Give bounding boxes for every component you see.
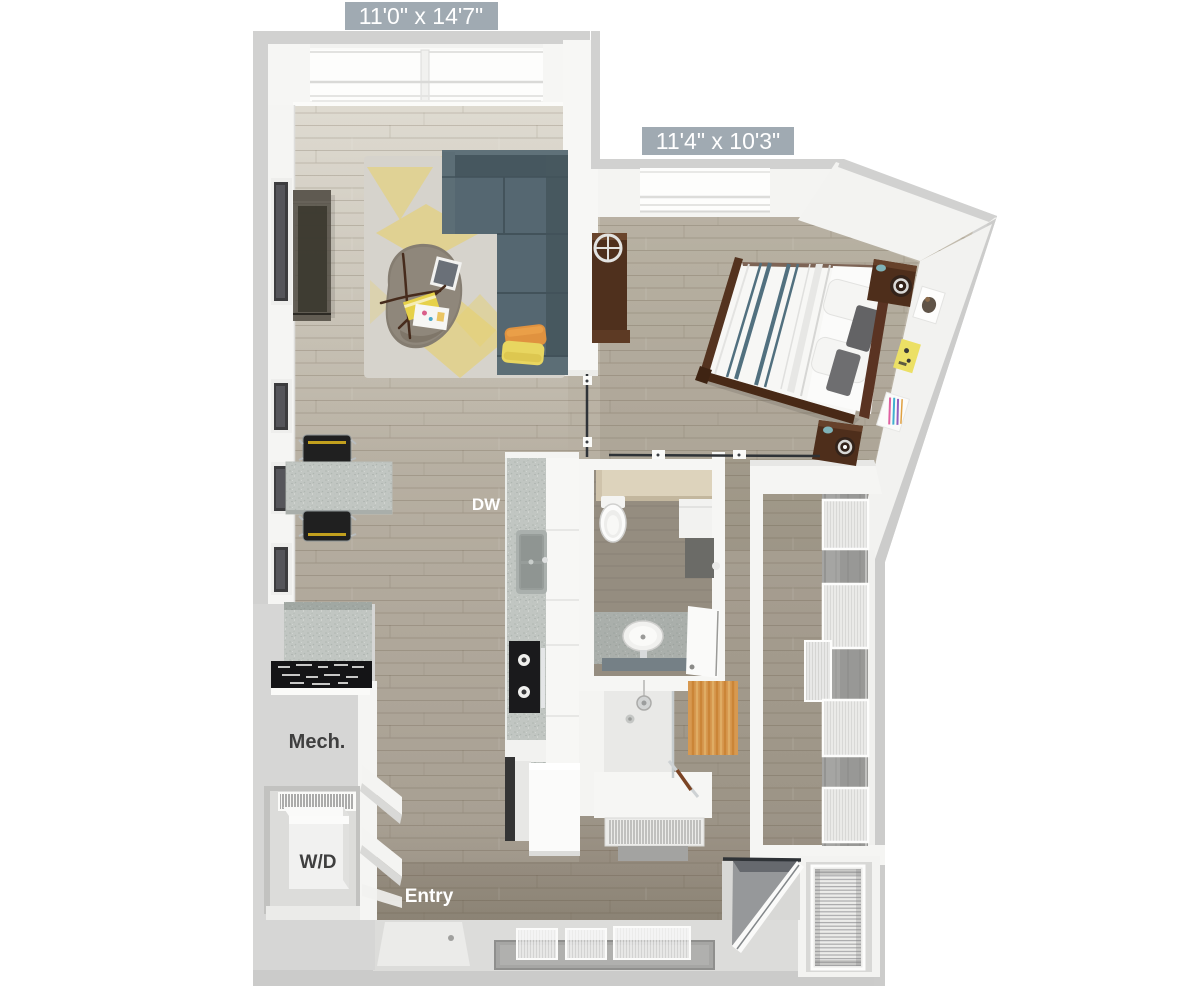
svg-text:DW: DW <box>472 495 501 514</box>
svg-text:Mech.: Mech. <box>289 731 346 753</box>
svg-text:W/D: W/D <box>300 852 337 873</box>
svg-text:11'4" x 10'3": 11'4" x 10'3" <box>656 128 780 154</box>
svg-text:11'0" x 14'7": 11'0" x 14'7" <box>359 3 483 29</box>
svg-text:Entry: Entry <box>405 886 454 907</box>
